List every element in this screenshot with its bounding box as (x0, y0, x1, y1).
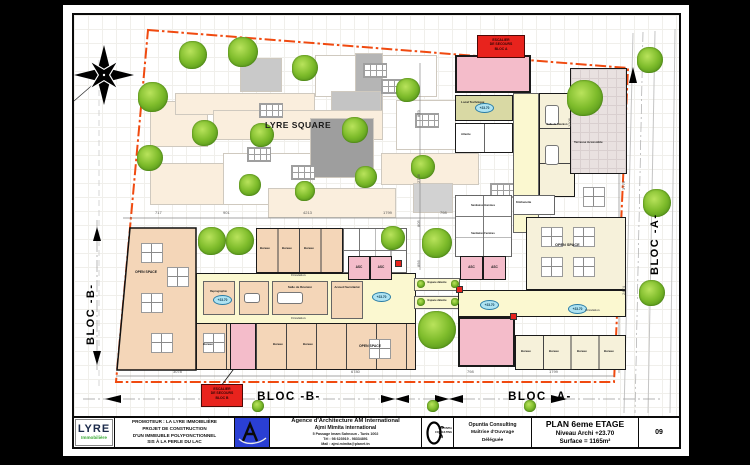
dimension: 1206 (567, 118, 572, 127)
bloc-a-elevator-1: ASC (460, 256, 483, 280)
tree-icon (239, 174, 261, 196)
open-space-label: OPEN SPACE (555, 243, 580, 247)
bureau-label: Bureau (282, 247, 292, 250)
meeting-table (545, 145, 559, 165)
bloc-b-bottom-label: BLOC -B- (243, 391, 335, 403)
plan-surface: Surface = 1165m² (560, 438, 611, 446)
bloc-a-elevator-2: ASC (483, 256, 506, 280)
drawing-sheet: ASC ASC ASC ASC (63, 5, 689, 456)
circulation-label: Circulation (291, 317, 306, 320)
lyre-logo-name: LYRE (78, 424, 110, 435)
dimension: 3779 (621, 181, 626, 190)
lyre-logo-sub: Immobilière (81, 435, 107, 441)
bureau-label: Bureau (304, 247, 314, 250)
bureau-label: Bureau (203, 343, 213, 346)
local-technique-label: Local Technique (461, 101, 484, 104)
bloc-a-bottom-label: BLOC -A- (491, 391, 589, 403)
level-marker: +23.70 (213, 295, 232, 305)
bureau-label: Bureau (604, 350, 614, 353)
site-label: LYRE SQUARE (265, 121, 331, 131)
fire-equipment-icon (510, 313, 517, 320)
bureau-label: Bureau (521, 350, 531, 353)
dimension: 798 (440, 210, 447, 215)
meeting-table (244, 293, 260, 303)
dimension: 901 (223, 210, 230, 215)
attente-label: Attente (461, 133, 471, 136)
desk-cluster (369, 339, 391, 359)
bloc-a-stair-top (455, 55, 531, 93)
dimension: 4213 (303, 210, 312, 215)
kitchenette-label: Kitchenette (516, 201, 531, 204)
dimension: 805 (416, 220, 421, 227)
architect-logo (235, 418, 270, 447)
bloc-b-office-row-top (256, 228, 343, 273)
bureau-label: Bureau (577, 350, 587, 353)
desk-cluster (151, 333, 173, 353)
bureau-label: Bureau (549, 350, 559, 353)
desk-cluster (141, 293, 163, 313)
circulation-label: Circulation (585, 309, 600, 312)
plan-title: PLAN 6eme ETAGE (546, 419, 624, 430)
fire-equipment-icon (395, 260, 402, 267)
tree-icon (355, 166, 377, 188)
dimension: 2474 (621, 286, 626, 295)
escape-stair-label-a: ESCALIERDE SECOURSBLOC A (477, 35, 525, 58)
terrace-label: Terrasse Accessible (574, 141, 603, 144)
level-marker: +23.70 (480, 300, 499, 310)
sheet-number: 09 (639, 418, 679, 447)
open-space-label: OPEN SPACE (359, 345, 381, 349)
bureau-label: Bureau (303, 343, 313, 346)
dimension: 2706 (416, 174, 421, 183)
promoter-info: PROMOTEUR : LA LYRE IMMOBILIÈRE PROJET D… (115, 418, 235, 447)
escape-stair-label-b: ESCALIERDE SECOURSBLOC B (201, 384, 243, 407)
desk-cluster (541, 257, 563, 277)
meeting-table (545, 105, 559, 125)
sanitaires-label: Sanitaires Femmes (457, 233, 509, 236)
meeting-room-label: Salle de Réunion (274, 286, 326, 289)
opuntia-info: Opuntia Consulting Maîtrise d'Ouvrage Dé… (454, 418, 532, 447)
bloc-b-elevator-2: ASC (370, 256, 392, 280)
sanitaires-label: Sanitaires Hommes (457, 205, 509, 208)
desk-cluster (573, 257, 595, 277)
plan-level: Niveau Archi +23.70 (556, 430, 614, 438)
title-block: LYRE Immobilière PROMOTEUR : LA LYRE IMM… (72, 416, 681, 449)
lyre-logo: LYRE Immobilière (74, 418, 115, 447)
open-space-label: OPEN SPACE (135, 271, 157, 275)
bloc-a-stair-bottom (458, 317, 515, 367)
desk-cluster (141, 243, 163, 263)
repro-label: Reprographie (202, 291, 235, 294)
dimension: 1799 (383, 210, 392, 215)
bloc-a-side-label: BLOC -A- (649, 180, 661, 275)
desk-cluster (167, 267, 189, 287)
dimension: 798 (467, 369, 474, 374)
bloc-b-side-label: BLOC -B- (85, 250, 97, 345)
bureau-label: Bureau (273, 343, 283, 346)
screenshot-root: { "plan": { "site_label": "LYRE SQUARE",… (0, 0, 750, 465)
circulation-label: Circulation (291, 274, 306, 277)
agency-info: Agence d'Architecture AM International A… (270, 418, 422, 447)
dimension: 3078 (173, 369, 182, 374)
desk-cluster (583, 187, 605, 207)
opuntia-logo: OPUNTIA CONSULTING (422, 418, 454, 447)
bureau-label: Bureau (260, 247, 270, 250)
bloc-a-waiting-room (455, 123, 513, 153)
drawing-title: PLAN 6eme ETAGE Niveau Archi +23.70 Surf… (532, 418, 639, 447)
bloc-b-elevator-1: ASC (348, 256, 370, 280)
dimension: 1799 (549, 369, 558, 374)
reception-label: Accueil Secrétariat (330, 286, 364, 289)
dimension: 6780 (351, 369, 360, 374)
dimension: 856 (416, 260, 421, 267)
level-marker: +23.70 (372, 292, 391, 302)
architect-logo-glyph (236, 419, 268, 447)
bloc-b-stair (230, 323, 256, 370)
dimension: 717 (155, 210, 162, 215)
dimension: 879 (416, 110, 421, 117)
shrub-icon (427, 400, 439, 412)
level-marker: +23.70 (475, 103, 494, 113)
meeting-table (277, 292, 303, 304)
espace-detente-label: Espace détente (418, 282, 456, 285)
espace-detente-label: Espace détente (418, 300, 456, 303)
bloc-a-kitchenette (513, 195, 555, 215)
